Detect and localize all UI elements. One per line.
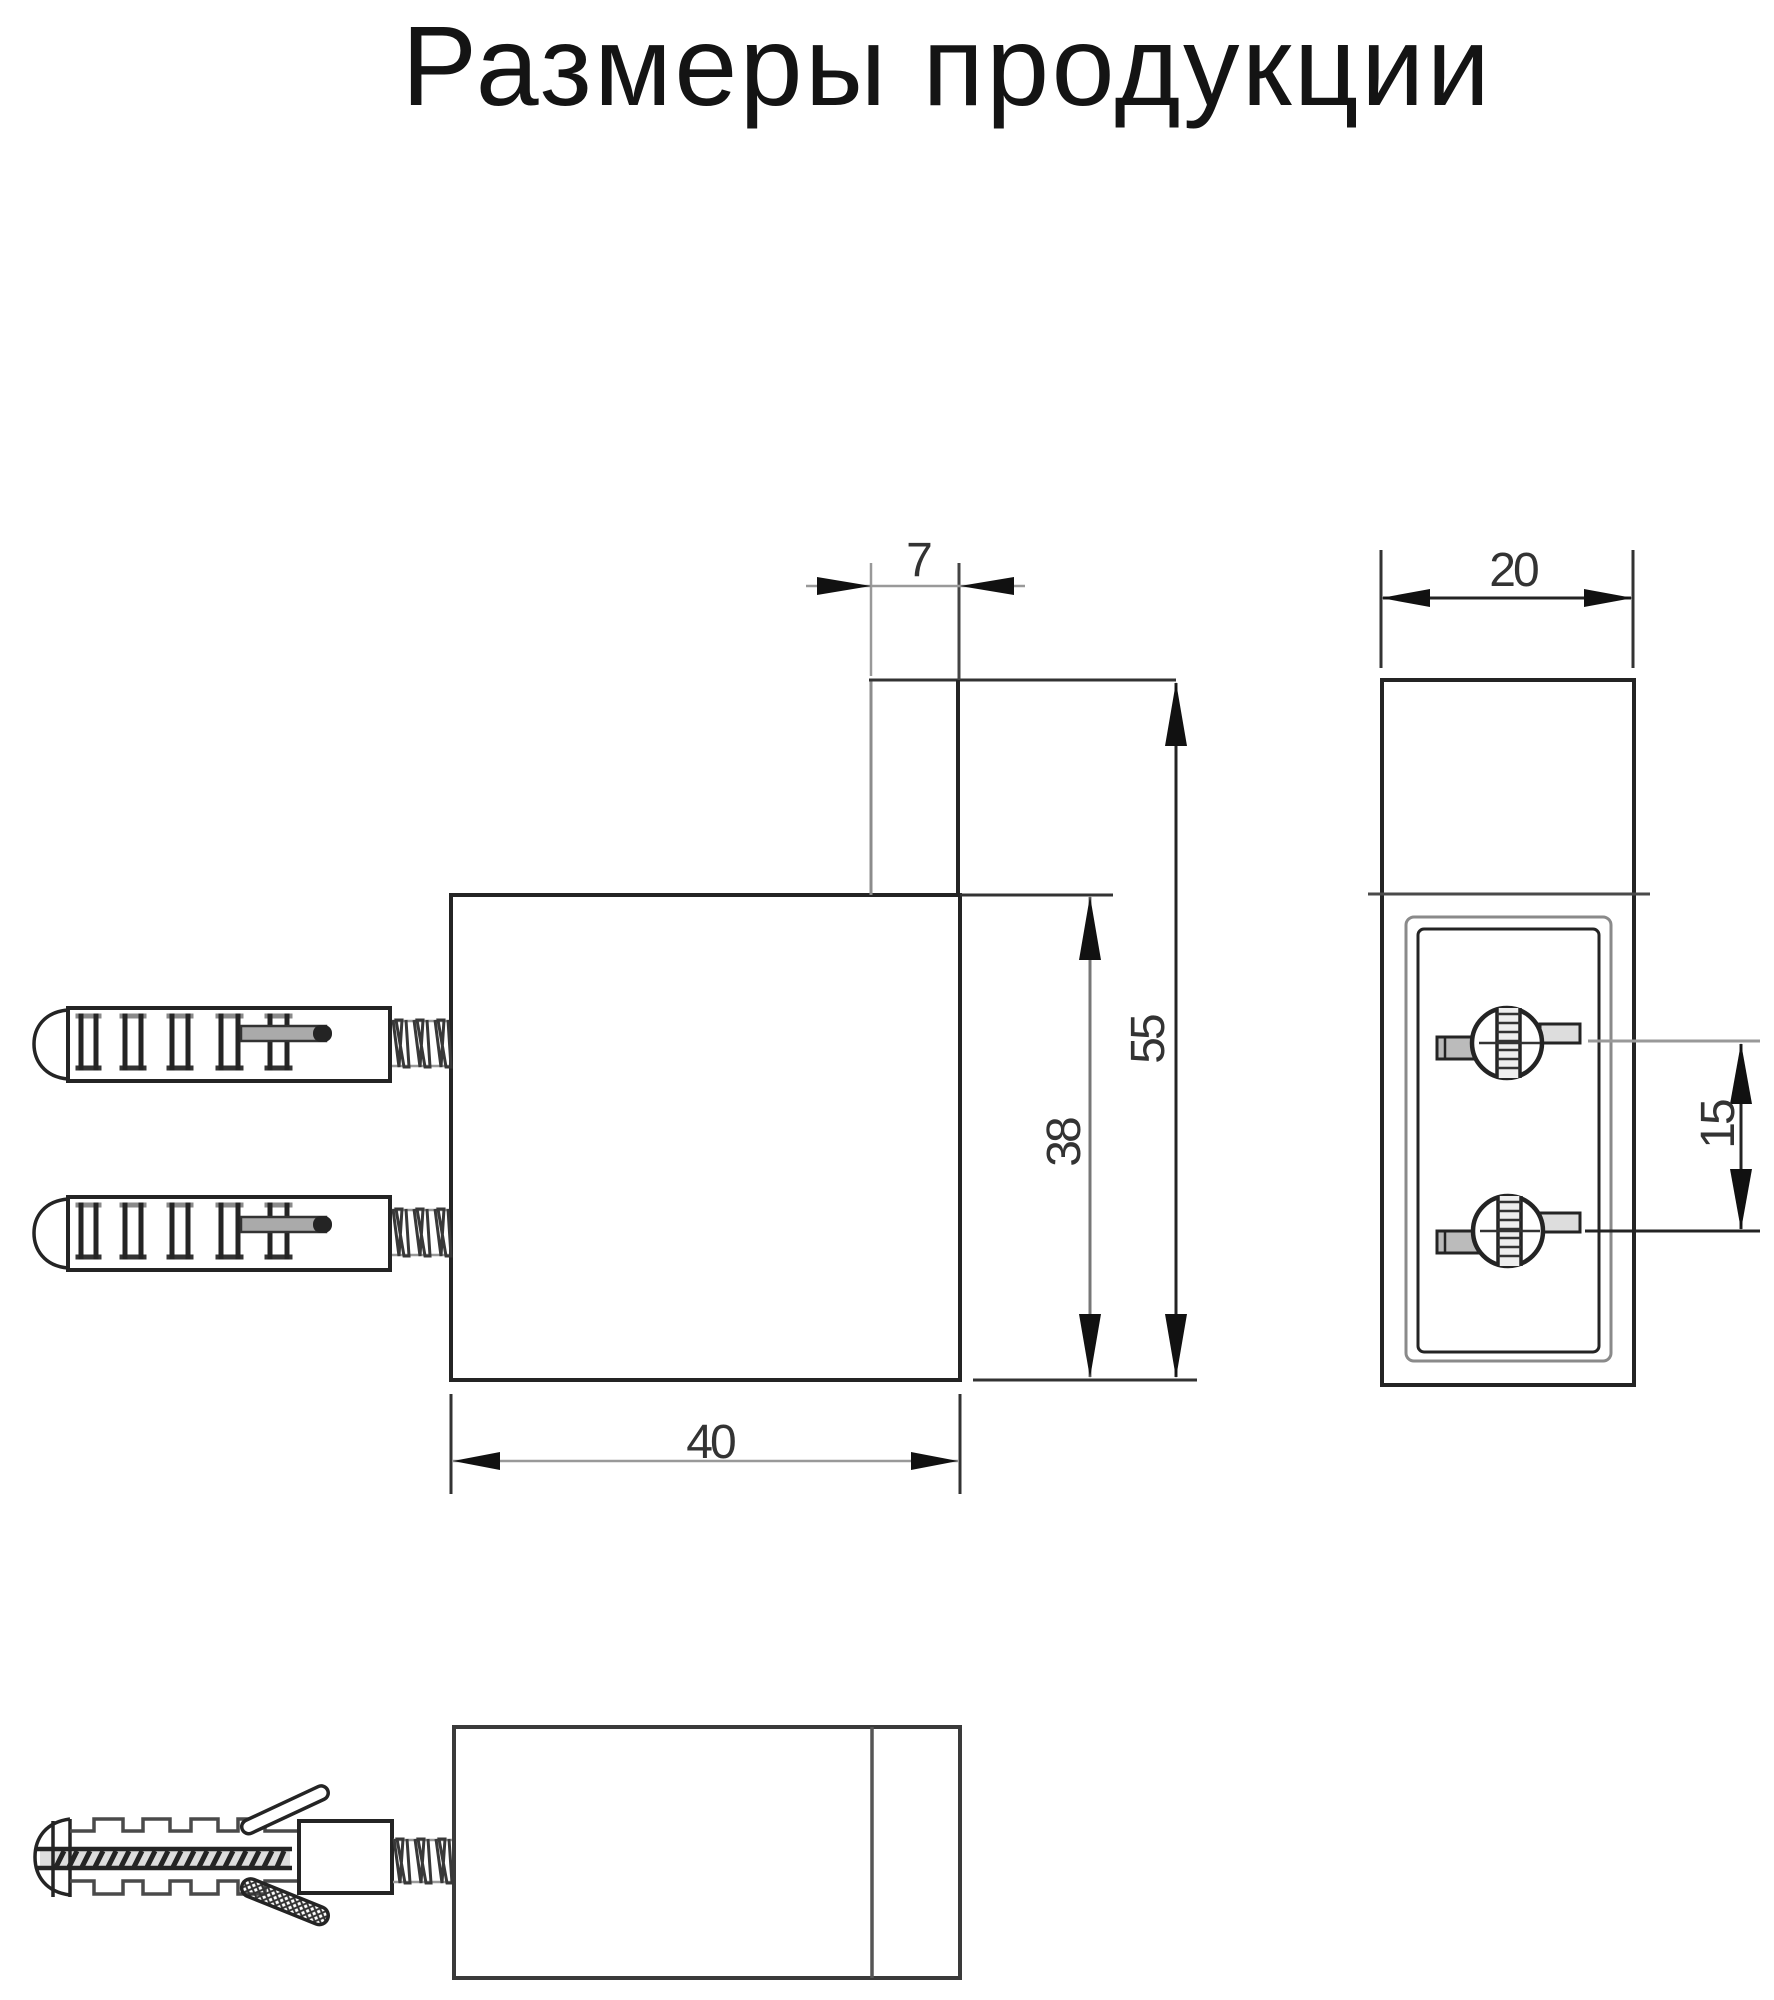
svg-text:Размеры продукции: Размеры продукции bbox=[402, 3, 1493, 129]
svg-text:20: 20 bbox=[1489, 544, 1538, 597]
svg-text:7: 7 bbox=[906, 534, 931, 587]
svg-text:38: 38 bbox=[1038, 1118, 1091, 1167]
svg-text:15: 15 bbox=[1692, 1100, 1745, 1149]
svg-text:55: 55 bbox=[1122, 1015, 1175, 1064]
svg-text:40: 40 bbox=[686, 1416, 735, 1469]
